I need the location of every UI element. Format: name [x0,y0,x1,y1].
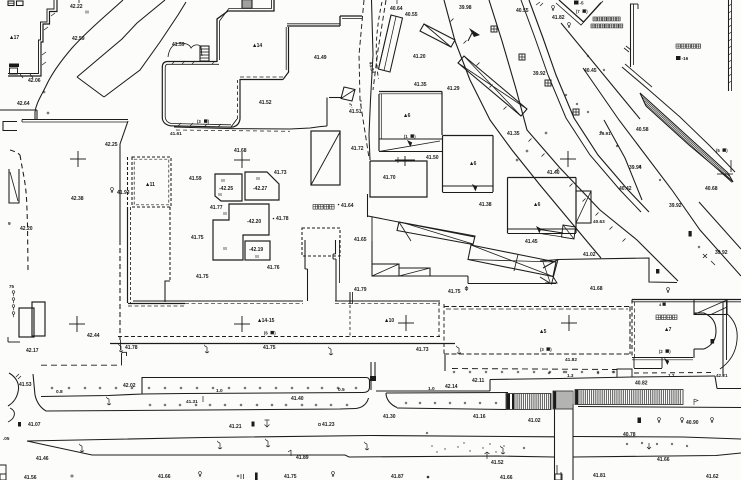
svg-text:-42.27: -42.27 [253,186,267,192]
svg-text:39.98: 39.98 [459,5,472,11]
svg-text:0.8: 0.8 [56,389,63,395]
svg-text:42.17: 42.17 [26,348,39,354]
svg-text:41.31: 41.31 [186,399,198,404]
svg-text:41.66: 41.66 [500,475,513,480]
svg-text:40.82: 40.82 [635,381,648,387]
svg-text:41.16: 41.16 [473,414,486,420]
svg-text:41.46: 41.46 [36,456,49,462]
svg-text:40.78: 40.78 [623,432,636,438]
svg-text:41.78: 41.78 [276,216,289,222]
svg-text:41.30: 41.30 [383,414,396,420]
svg-text:41.66: 41.66 [657,457,670,463]
svg-text:41.23: 41.23 [322,422,335,428]
svg-text:41.59: 41.59 [189,176,202,182]
svg-text:40.55: 40.55 [405,12,418,18]
svg-text:41.49: 41.49 [314,55,327,61]
svg-text:39.92: 39.92 [715,250,728,256]
svg-text:41.62: 41.62 [706,474,719,480]
svg-text:42.20: 42.20 [20,226,33,232]
svg-text:41.35: 41.35 [414,82,427,88]
svg-text:41.07: 41.07 [28,422,41,428]
svg-text:41.64: 41.64 [341,203,354,209]
svg-text:40.64: 40.64 [390,6,403,12]
svg-text:41.59: 41.59 [172,42,185,48]
svg-text:41.75: 41.75 [284,474,297,480]
svg-text:40.58: 40.58 [636,127,649,133]
svg-text:41.78: 41.78 [125,345,138,351]
svg-text:41.56: 41.56 [24,475,37,480]
svg-text:39.92: 39.92 [669,203,682,209]
svg-text:42.11: 42.11 [472,378,484,384]
svg-text:40.55: 40.55 [516,8,529,14]
svg-text:41.89: 41.89 [296,455,309,461]
svg-text:41.79: 41.79 [354,287,367,293]
svg-text:42.06: 42.06 [28,78,41,84]
svg-text:41.72: 41.72 [351,146,364,152]
svg-text:40.63: 40.63 [593,219,605,224]
svg-text:41.02: 41.02 [583,252,596,258]
svg-text:42.38: 42.38 [71,196,84,202]
svg-text:-42.19: -42.19 [249,247,263,253]
svg-text:41.53: 41.53 [19,382,32,388]
svg-text:11: 11 [150,182,156,188]
svg-text:42.21: 42.21 [716,373,728,378]
svg-text:42.44: 42.44 [87,333,100,339]
svg-text:6: 6 [538,202,541,208]
svg-text:41.73: 41.73 [416,347,429,353]
svg-text:6: 6 [474,161,477,167]
svg-text:42.59: 42.59 [72,36,85,42]
svg-text:41.40: 41.40 [291,396,304,402]
svg-text:1.2: 1.2 [668,373,675,378]
svg-text:42.22: 42.22 [70,4,83,10]
svg-text:41.73: 41.73 [274,170,287,176]
svg-text:41.52: 41.52 [259,100,272,106]
svg-text:41.75: 41.75 [191,235,204,241]
svg-text:41.77: 41.77 [210,205,223,211]
svg-text:40.45: 40.45 [584,68,597,74]
svg-text:41.52: 41.52 [491,460,504,466]
svg-text:41.35: 41.35 [507,131,520,137]
svg-text:7: 7 [669,327,672,333]
svg-text:41.68: 41.68 [234,148,247,154]
svg-text:-5: -5 [580,1,585,6]
svg-text:-16: -16 [682,56,689,61]
svg-text:6: 6 [408,113,411,119]
svg-text:42.02: 42.02 [123,383,136,389]
svg-text:41.21: 41.21 [229,424,242,430]
svg-text:41.70: 41.70 [383,175,396,181]
svg-text:9: 9 [8,221,11,227]
svg-text:40.90: 40.90 [686,420,699,426]
svg-text:41.51: 41.51 [349,109,362,115]
svg-text:40.42: 40.42 [619,186,632,192]
svg-text:41.45: 41.45 [525,239,538,245]
svg-text:40.68: 40.68 [705,186,718,192]
svg-text:41.61: 41.61 [170,131,182,136]
svg-text:41.81: 41.81 [593,473,606,479]
svg-text:17: 17 [14,35,20,41]
svg-text:41.82: 41.82 [565,357,577,363]
svg-text:42.14: 42.14 [445,384,458,390]
svg-text:-42.20: -42.20 [247,219,261,225]
svg-text:41.87: 41.87 [391,474,404,480]
svg-text:1.0: 1.0 [216,388,223,394]
svg-text:5: 5 [544,329,547,335]
svg-text:0.5: 0.5 [338,387,345,393]
svg-text:41.29: 41.29 [447,86,460,92]
svg-text:41.82: 41.82 [552,15,565,21]
svg-text:.05: .05 [3,436,10,441]
svg-text:1.0: 1.0 [428,386,435,392]
svg-text:-42.25: -42.25 [219,186,233,192]
svg-text:41.75: 41.75 [196,274,209,280]
svg-text:41.38: 41.38 [479,202,492,208]
svg-text:14: 14 [257,43,263,49]
svg-text:42.25: 42.25 [105,142,118,148]
svg-text:39.92: 39.92 [533,71,546,77]
svg-text:41.66: 41.66 [158,474,171,480]
svg-text:41.20: 41.20 [413,54,426,60]
svg-text:41.40: 41.40 [547,170,560,176]
svg-text:41.02: 41.02 [528,418,541,424]
svg-text:41.50: 41.50 [426,155,439,161]
svg-text:41.75: 41.75 [448,289,461,295]
svg-text:1.3: 1.3 [567,373,574,378]
svg-text:41.68: 41.68 [590,286,603,292]
svg-text:41.65: 41.65 [354,237,367,243]
svg-text:75: 75 [9,284,15,289]
svg-text:41.75: 41.75 [263,345,276,351]
svg-text:41.76: 41.76 [267,265,280,271]
svg-text:10: 10 [389,318,395,324]
svg-text:42.64: 42.64 [17,101,30,107]
svg-text:14-15: 14-15 [262,318,275,324]
